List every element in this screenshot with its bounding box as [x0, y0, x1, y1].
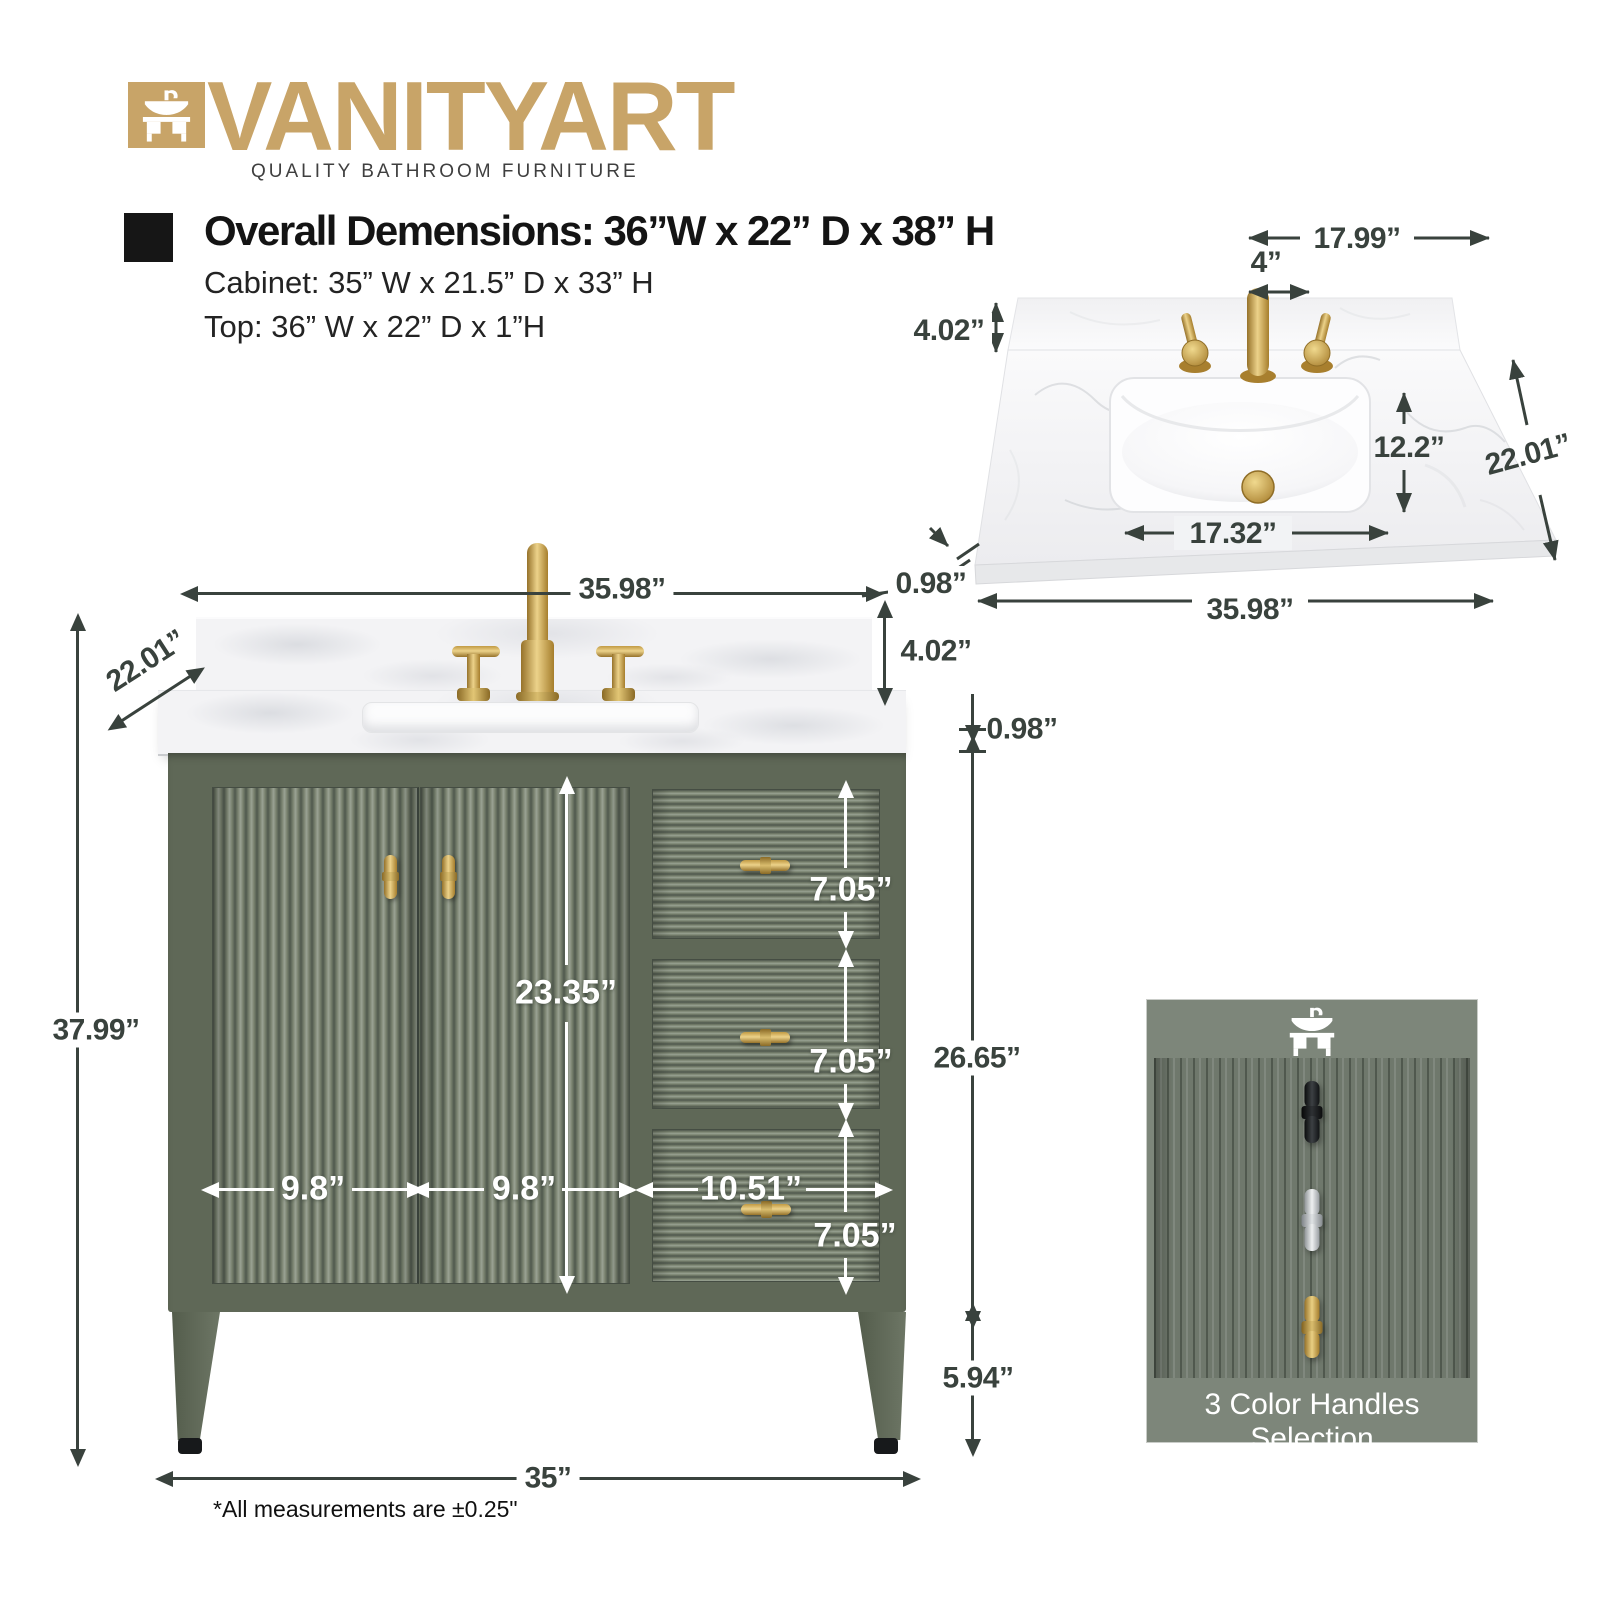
faucet-left-handle-base: [457, 688, 490, 701]
right-leg: [858, 1312, 906, 1440]
thickness-tick-top: [959, 728, 986, 731]
dim-sink-width: 17.32”: [1189, 517, 1276, 550]
handle-option-gold: [1299, 1296, 1325, 1358]
vanity-dimension-sheet: VANITYART QUALITY BATHROOM FURNITURE Ove…: [0, 0, 1600, 1600]
dim-line-drawer2-top: [844, 966, 847, 1042]
handle-option-black: [1299, 1081, 1325, 1143]
dim-line-thickness-front: [971, 694, 974, 726]
dim-counter-thickness-front: 0.98”: [987, 713, 1058, 746]
dim-line-drawer1-top: [844, 797, 847, 868]
faucet-spout-flare: [516, 692, 559, 701]
left-leg: [172, 1312, 220, 1440]
dim-line-cabinet-side: [971, 752, 974, 1312]
sink-drain: [1242, 471, 1274, 503]
dim-line-door2-width-r: [562, 1188, 620, 1191]
dim-line-drawer-width-l: [652, 1188, 698, 1191]
top-spec: Top: 36” W x 22” D x 1”H: [204, 309, 545, 345]
right-door-knob: [442, 855, 455, 899]
dim-door-height: 23.35”: [515, 974, 617, 1011]
dim-line-door-height-top: [565, 793, 568, 965]
dim-line-drawer3-top: [844, 1136, 847, 1212]
top-view-backsplash: [1008, 298, 1460, 350]
dim-line-drawer3-bottom: [844, 1258, 847, 1278]
dim-line-door2-width-l: [428, 1188, 484, 1191]
dim-sink-depth: 12.2”: [1374, 431, 1445, 464]
dim-counter-depth-front: 22.01”: [100, 623, 191, 698]
brand-tagline: QUALITY BATHROOM FURNITURE: [251, 161, 639, 183]
left-foot: [178, 1438, 202, 1454]
faucet-right-handle-base: [602, 688, 635, 701]
dim-line-counter-width-front: [197, 592, 867, 595]
dim-cabinet-side-height: 26.65”: [925, 1041, 1028, 1076]
dim-drawer3-height: 7.05”: [813, 1217, 896, 1254]
dim-drawer-width: 10.51”: [700, 1170, 802, 1207]
dim-line-drawer1-bottom: [844, 912, 847, 932]
dim-hole-spacing: 4”: [1251, 246, 1282, 279]
panel-vanity-icon: [1284, 1006, 1340, 1056]
dim-faucet-span: 17.99”: [1313, 222, 1400, 255]
dim-cabinet-width: 35”: [517, 1461, 580, 1496]
faucet-right-handle-stem: [612, 654, 625, 690]
panel-title: 3 Color Handles Selection: [1147, 1388, 1477, 1456]
countertop-top-view: 17.99” 4” 4.02” 12.2” 22.01” 17.32” 0.98…: [860, 200, 1600, 630]
heading-bullet: [124, 213, 173, 262]
handles-selection-panel: 3 Color Handles Selection: [1147, 1000, 1477, 1442]
dim-backsplash-height-front: 4.02”: [901, 635, 972, 668]
vanity-sink-icon: [137, 87, 196, 143]
right-foot: [874, 1438, 898, 1454]
dim-leg-height: 5.94”: [935, 1361, 1022, 1396]
dim-line-drawer-width-r: [806, 1188, 876, 1191]
dim-backsplash-height-top: 4.02”: [914, 314, 985, 347]
handle-option-chrome: [1299, 1189, 1325, 1251]
dim-line-door1-width-l: [218, 1188, 274, 1191]
faucet-left-handle-stem: [467, 654, 480, 690]
logo-box: [128, 82, 205, 148]
dim-drawer2-height: 7.05”: [809, 1043, 892, 1080]
dim-door1-width: 9.8”: [281, 1170, 345, 1207]
dim-drawer1-height: 7.05”: [809, 871, 892, 908]
faucet-spout-base: [521, 640, 554, 696]
left-door-knob: [384, 855, 397, 899]
faucet-spout: [527, 543, 548, 647]
measurement-footnote: *All measurements are ±0.25": [213, 1496, 518, 1523]
drawer-middle-pull: [740, 1032, 790, 1043]
dim-counter-width-front: 35.98”: [570, 572, 673, 607]
dim-line-drawer2-bottom: [844, 1084, 847, 1104]
dim-door2-width: 9.8”: [492, 1170, 556, 1207]
dim-line-backsplash-front: [883, 617, 886, 689]
dim-overall-height: 37.99”: [44, 1013, 147, 1048]
drawer-top-pull: [740, 860, 790, 871]
dim-line-door1-width-r: [352, 1188, 408, 1191]
dim-line-door-height-bottom: [565, 1022, 568, 1277]
dim-counter-width-top: 35.98”: [1206, 593, 1293, 626]
cabinet-spec: Cabinet: 35” W x 21.5” D x 33” H: [204, 265, 654, 301]
front-sink-basin: [362, 702, 699, 733]
dim-counter-thickness-top: 0.98”: [896, 567, 967, 600]
brand-wordmark: VANITYART: [207, 60, 734, 173]
cabinet-body: [168, 753, 906, 1312]
